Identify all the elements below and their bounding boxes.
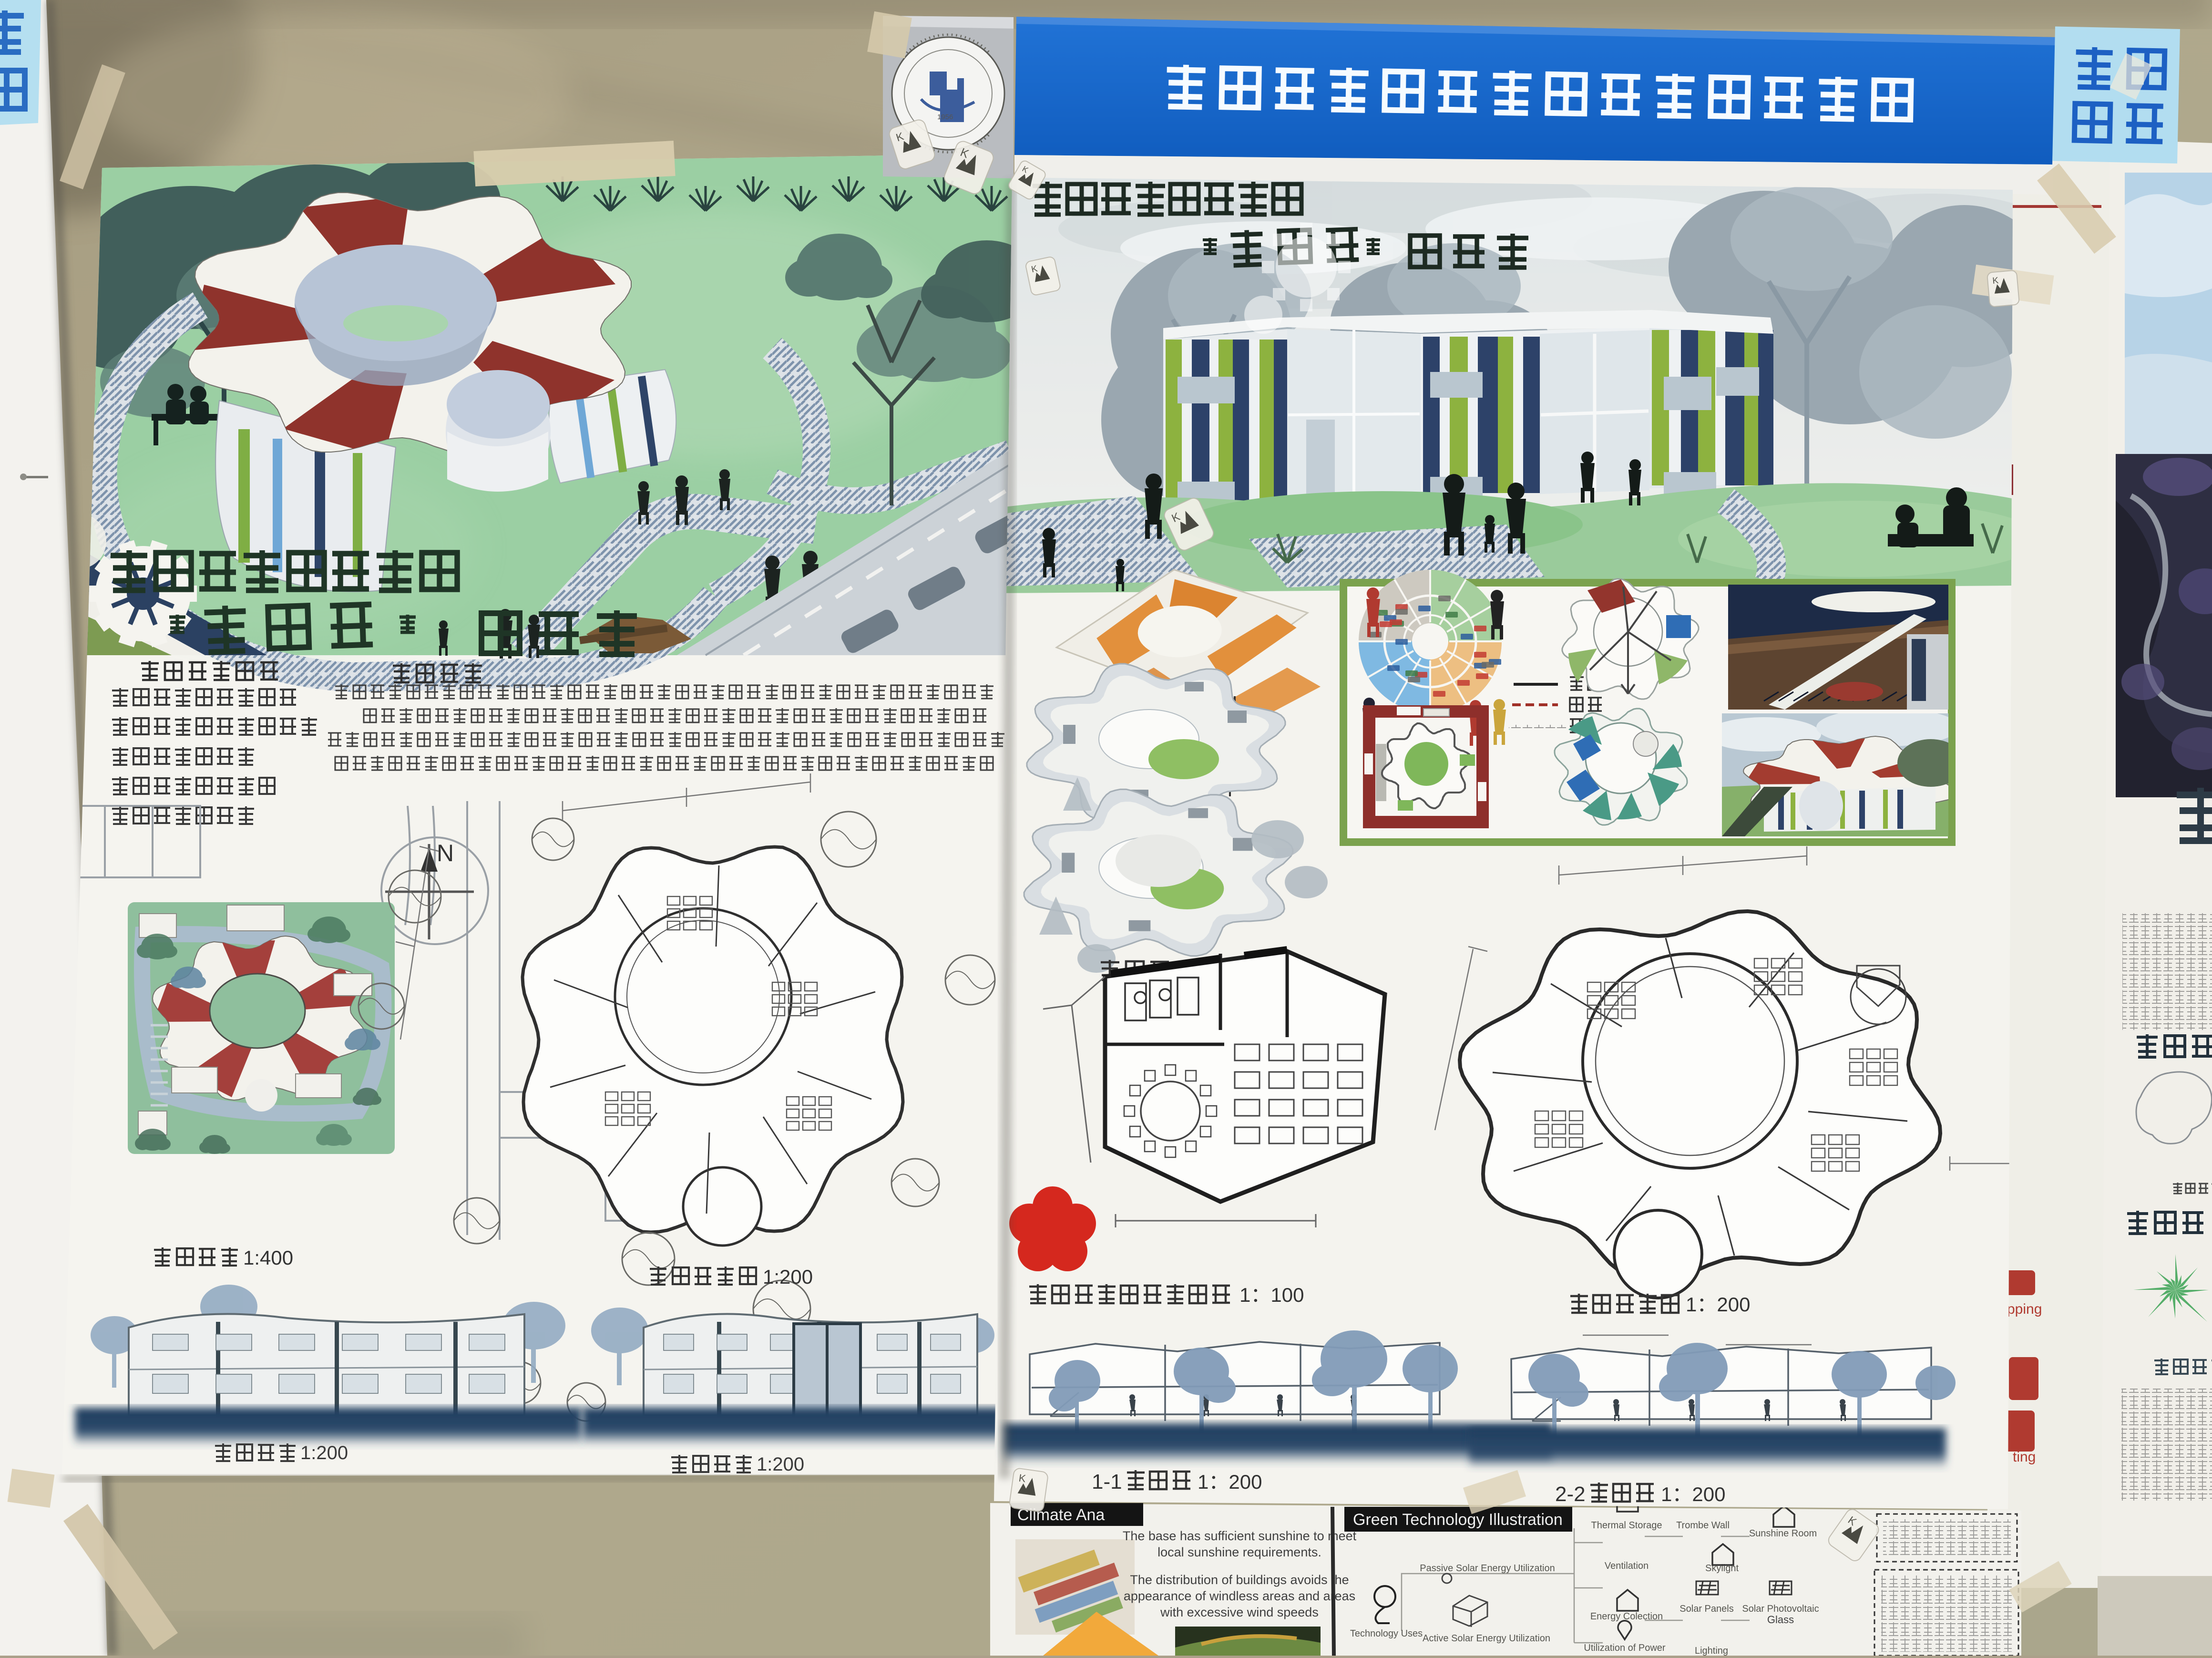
svg-text:appearance of windless areas a: appearance of windless areas and areas: [1124, 1589, 1355, 1603]
svg-text:1:200: 1:200: [300, 1442, 348, 1463]
svg-text:with excessive wind speeds: with excessive wind speeds: [1160, 1605, 1319, 1619]
svg-text:1:200: 1:200: [757, 1454, 804, 1475]
svg-text:1：200: 1：200: [1686, 1293, 1750, 1316]
svg-text:Active Solar Energy Utilizatio: Active Solar Energy Utilization: [1423, 1633, 1550, 1644]
svg-text:Technology Uses: Technology Uses: [1350, 1628, 1423, 1639]
svg-text:1：200: 1：200: [1198, 1471, 1262, 1493]
svg-text:1:200: 1:200: [763, 1266, 813, 1288]
svg-text:pping: pping: [2007, 1301, 2042, 1317]
svg-text:Utilization of Power: Utilization of Power: [1584, 1643, 1666, 1653]
svg-text:N: N: [437, 840, 454, 866]
svg-text:Thermal Storage: Thermal Storage: [1591, 1520, 1662, 1531]
svg-text:2-2: 2-2: [1555, 1483, 1586, 1506]
svg-text:Glass: Glass: [1767, 1614, 1794, 1626]
svg-text:Lighting: Lighting: [1695, 1646, 1728, 1656]
svg-text:K: K: [1992, 276, 1999, 286]
svg-text:Passive Solar Energy Utilizati: Passive Solar Energy Utilization: [1420, 1563, 1555, 1574]
svg-text:Sunshine Room: Sunshine Room: [1749, 1528, 1817, 1539]
svg-text:1956: 1956: [937, 113, 953, 121]
svg-text:Solar Photovoltaic: Solar Photovoltaic: [1742, 1604, 1819, 1614]
svg-text:Solar Panels: Solar Panels: [1679, 1604, 1733, 1614]
svg-text:Ventilation: Ventilation: [1605, 1561, 1649, 1571]
svg-text:1-1: 1-1: [1092, 1470, 1122, 1493]
svg-text:1:400: 1:400: [243, 1246, 293, 1269]
svg-text:local sunshine requirements.: local sunshine requirements.: [1157, 1545, 1321, 1559]
svg-text:1：200: 1：200: [1661, 1483, 1725, 1505]
svg-text:1：100: 1：100: [1239, 1284, 1304, 1306]
svg-text:The distribution of buildings: The distribution of buildings avoids the: [1130, 1573, 1349, 1587]
svg-text:Trombe Wall: Trombe Wall: [1676, 1520, 1730, 1531]
svg-text:Green Technology Illustration: Green Technology Illustration: [1353, 1511, 1563, 1529]
svg-text:The base has sufficient sunshi: The base has sufficient sunshine to meet: [1123, 1529, 1357, 1543]
svg-text:ting: ting: [2013, 1449, 2036, 1465]
